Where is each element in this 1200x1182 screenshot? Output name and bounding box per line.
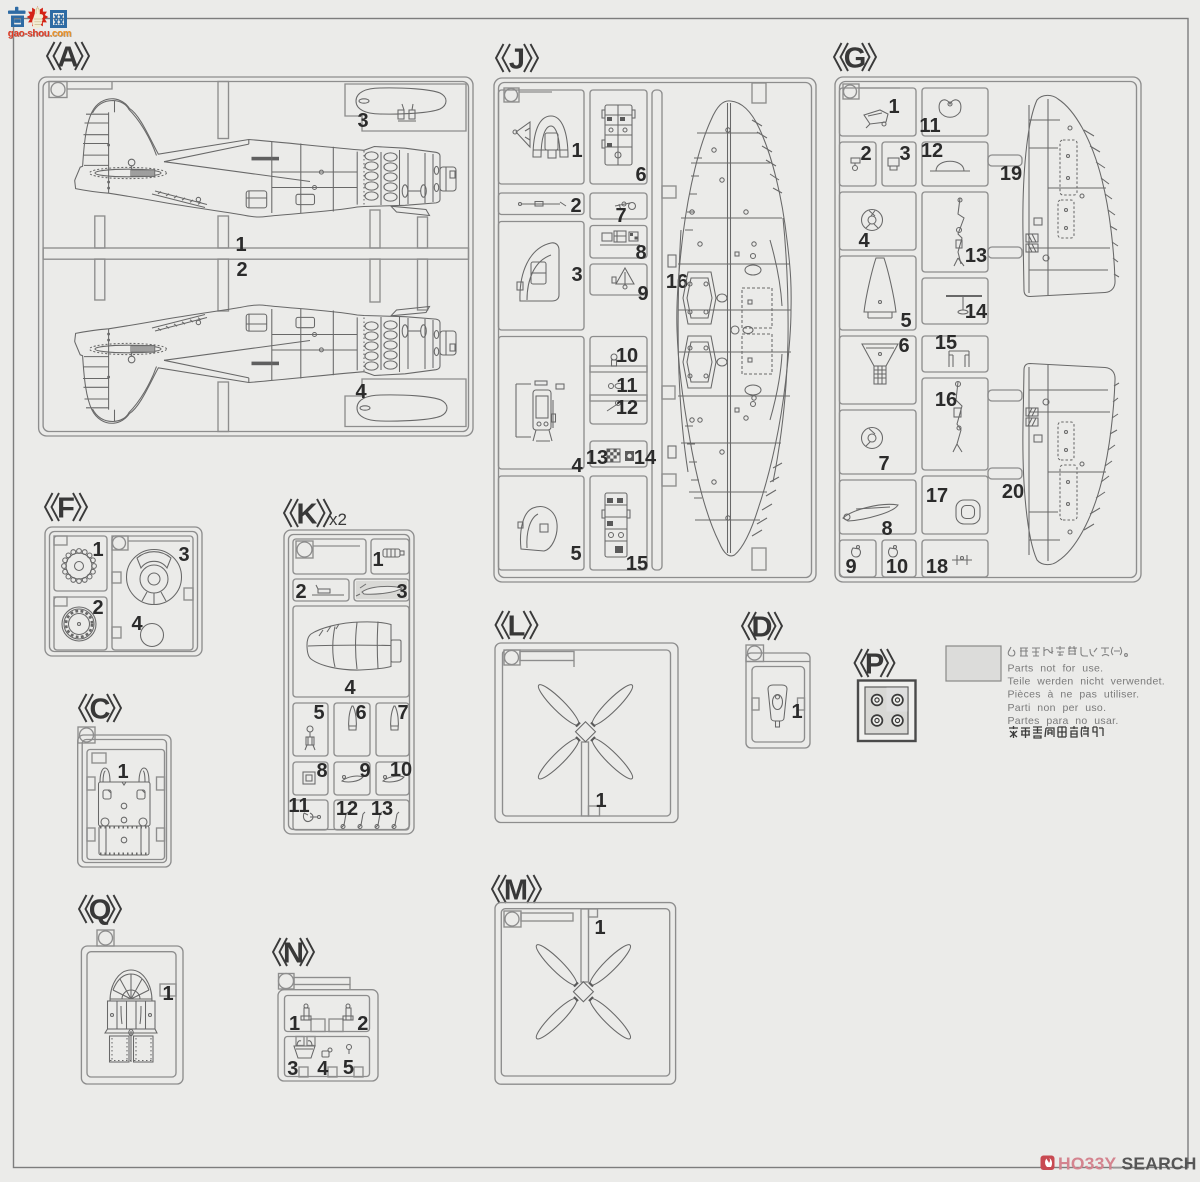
svg-text:14: 14 xyxy=(965,301,988,323)
svg-text:9: 9 xyxy=(359,760,370,782)
svg-text:15: 15 xyxy=(626,553,648,575)
svg-text:HO33Y: HO33Y xyxy=(1058,1154,1117,1174)
svg-text:2: 2 xyxy=(357,1013,368,1035)
svg-text:2: 2 xyxy=(295,581,306,603)
svg-text:10: 10 xyxy=(390,759,412,781)
svg-text:1: 1 xyxy=(888,96,899,118)
svg-text:3: 3 xyxy=(178,544,189,566)
svg-text:4: 4 xyxy=(317,1058,329,1080)
svg-text:P: P xyxy=(865,649,884,681)
svg-text:5: 5 xyxy=(570,543,581,565)
svg-text:8: 8 xyxy=(316,760,327,782)
svg-text:1: 1 xyxy=(571,140,582,162)
svg-text:N: N xyxy=(283,938,304,970)
svg-text:2: 2 xyxy=(860,143,871,165)
svg-text:12: 12 xyxy=(921,140,943,162)
svg-text:Pièces à ne pas utiliser.: Pièces à ne pas utiliser. xyxy=(1008,689,1140,701)
svg-text:Parts not for use.: Parts not for use. xyxy=(1008,663,1104,675)
svg-text:4: 4 xyxy=(571,455,583,477)
svg-text:4: 4 xyxy=(131,613,143,635)
svg-text:x2: x2 xyxy=(329,510,347,529)
svg-text:13: 13 xyxy=(965,245,987,267)
svg-text:F: F xyxy=(57,493,75,525)
svg-text:3: 3 xyxy=(899,143,910,165)
svg-text:8: 8 xyxy=(881,518,892,540)
svg-text:7: 7 xyxy=(397,702,408,724)
svg-text:D: D xyxy=(752,612,773,644)
svg-text:2: 2 xyxy=(236,259,247,281)
svg-text:4: 4 xyxy=(858,230,870,252)
svg-text:SEARCH: SEARCH xyxy=(1122,1154,1197,1174)
svg-text:Parti non per uso.: Parti non per uso. xyxy=(1008,702,1107,714)
svg-text:1: 1 xyxy=(117,761,128,783)
svg-text:11: 11 xyxy=(919,115,940,137)
svg-text:J: J xyxy=(509,44,525,76)
svg-text:18: 18 xyxy=(926,556,948,578)
svg-text:2: 2 xyxy=(570,195,581,217)
svg-text:14: 14 xyxy=(634,447,657,469)
svg-text:1: 1 xyxy=(162,983,173,1005)
svg-text:4: 4 xyxy=(344,677,356,699)
svg-text:C: C xyxy=(90,694,111,726)
svg-text:15: 15 xyxy=(935,332,957,354)
svg-text:3: 3 xyxy=(396,581,407,603)
svg-text:20: 20 xyxy=(1002,481,1024,503)
svg-text:9: 9 xyxy=(637,283,648,305)
svg-text:G: G xyxy=(844,43,867,75)
svg-text:11: 11 xyxy=(616,375,637,397)
svg-text:1: 1 xyxy=(289,1013,300,1035)
svg-text:5: 5 xyxy=(343,1057,354,1079)
svg-text:5: 5 xyxy=(313,702,324,724)
svg-text:5: 5 xyxy=(900,310,911,332)
svg-text:1: 1 xyxy=(595,790,606,812)
svg-text:Teile werden nicht verwendet.: Teile werden nicht verwendet. xyxy=(1008,676,1166,688)
svg-text:11: 11 xyxy=(288,795,309,817)
svg-text:19: 19 xyxy=(1000,163,1022,185)
svg-text:A: A xyxy=(58,42,79,74)
svg-text:6: 6 xyxy=(635,164,646,186)
svg-text:7: 7 xyxy=(878,453,889,475)
svg-text:4: 4 xyxy=(355,381,367,403)
svg-text:7: 7 xyxy=(615,205,626,227)
svg-text:3: 3 xyxy=(287,1058,298,1080)
svg-text:3: 3 xyxy=(357,110,368,132)
svg-text:L: L xyxy=(508,611,526,643)
svg-text:9: 9 xyxy=(845,556,856,578)
svg-text:16: 16 xyxy=(935,389,957,411)
svg-text:8: 8 xyxy=(635,242,646,264)
svg-text:1: 1 xyxy=(372,549,383,571)
svg-text:2: 2 xyxy=(92,597,103,619)
svg-text:10: 10 xyxy=(616,345,638,367)
svg-text:17: 17 xyxy=(926,485,948,507)
svg-text:Partes para no usar.: Partes para no usar. xyxy=(1008,715,1119,727)
svg-text:gao-shou.com: gao-shou.com xyxy=(8,29,72,40)
svg-text:1: 1 xyxy=(791,701,802,723)
svg-text:10: 10 xyxy=(886,556,908,578)
svg-text:3: 3 xyxy=(571,264,582,286)
svg-text:Q: Q xyxy=(89,895,112,927)
svg-text:12: 12 xyxy=(616,397,638,419)
svg-text:1: 1 xyxy=(594,917,605,939)
svg-text:K: K xyxy=(297,499,318,531)
svg-text:1: 1 xyxy=(235,234,246,256)
svg-text:13: 13 xyxy=(586,447,608,469)
svg-text:6: 6 xyxy=(898,335,909,357)
svg-text:12: 12 xyxy=(336,798,358,820)
svg-text:M: M xyxy=(504,875,528,907)
svg-text:13: 13 xyxy=(371,798,393,820)
svg-text:6: 6 xyxy=(355,702,366,724)
svg-text:1: 1 xyxy=(92,539,103,561)
